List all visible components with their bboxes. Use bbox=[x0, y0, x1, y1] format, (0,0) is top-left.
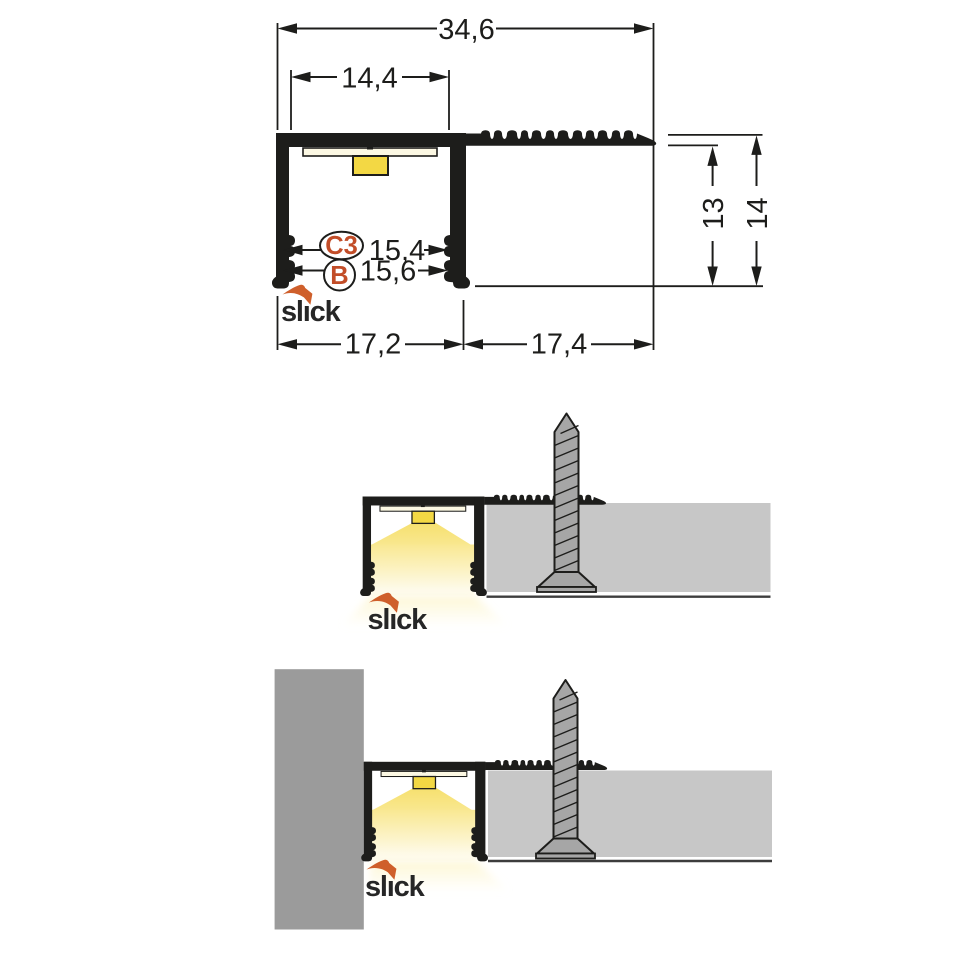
svg-text:34,6: 34,6 bbox=[438, 14, 494, 46]
svg-text:14,4: 14,4 bbox=[341, 62, 397, 94]
svg-text:C3: C3 bbox=[325, 232, 358, 260]
svg-text:14: 14 bbox=[742, 197, 774, 229]
svg-text:15,6: 15,6 bbox=[360, 255, 416, 287]
svg-text:17,2: 17,2 bbox=[345, 329, 401, 361]
svg-text:13: 13 bbox=[698, 197, 730, 229]
svg-text:17,4: 17,4 bbox=[531, 329, 587, 361]
svg-text:B: B bbox=[330, 262, 348, 290]
